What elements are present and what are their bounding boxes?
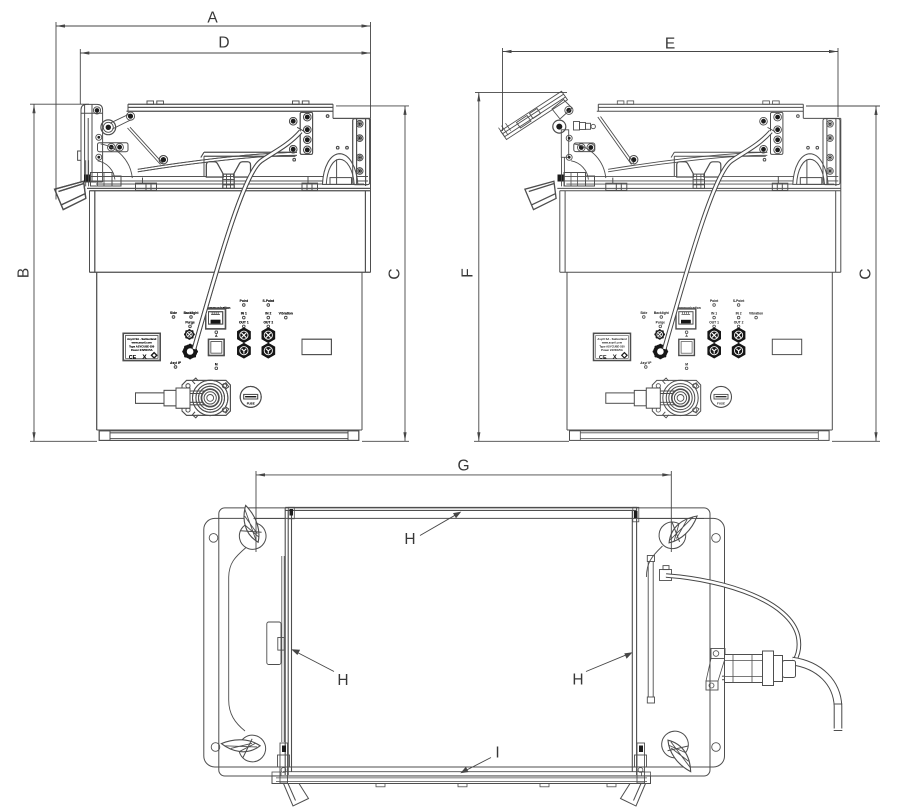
svg-text:H: H [572, 672, 583, 689]
svg-text:I: I [495, 745, 499, 762]
svg-text:E: E [665, 36, 675, 53]
svg-text:A: A [207, 10, 218, 27]
svg-text:C: C [387, 268, 404, 279]
svg-text:F: F [460, 268, 477, 277]
svg-text:G: G [457, 458, 469, 475]
svg-text:H: H [404, 531, 415, 548]
svg-text:C: C [858, 268, 875, 279]
svg-text:D: D [218, 35, 229, 52]
svg-text:B: B [16, 268, 33, 278]
svg-text:H: H [337, 672, 348, 689]
